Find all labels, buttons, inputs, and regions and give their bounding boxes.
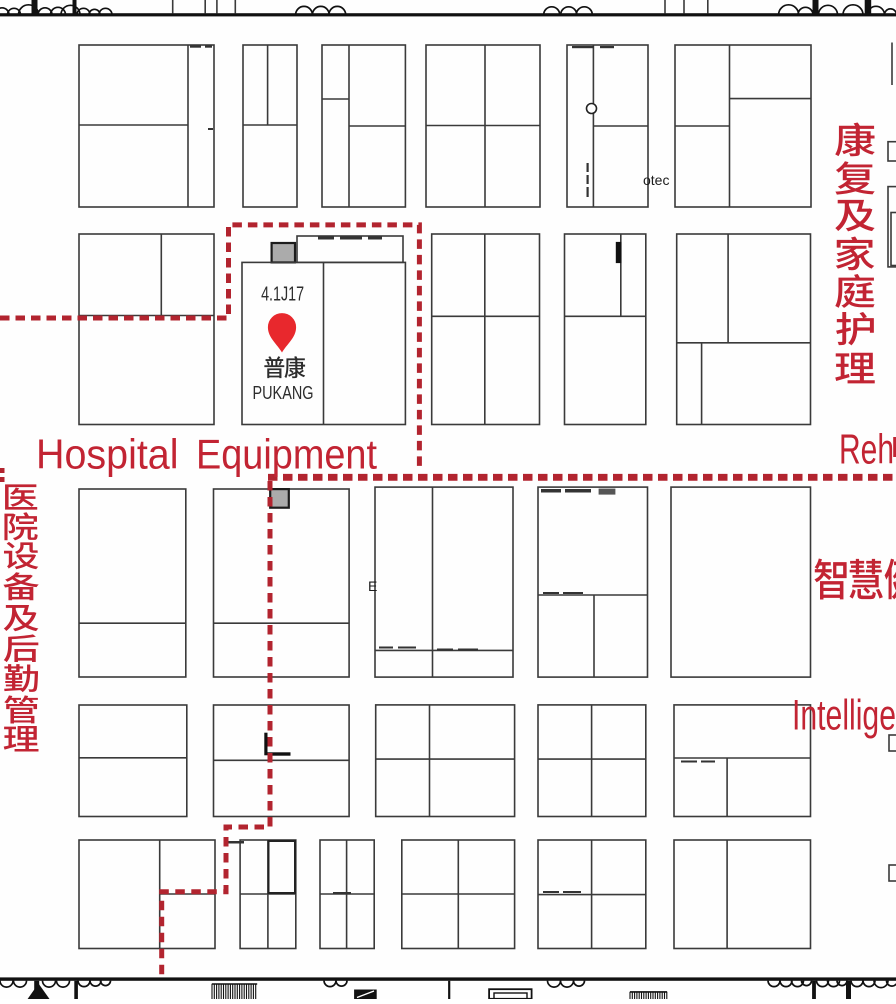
svg-text:PUKANG: PUKANG [253,382,314,403]
svg-text:otec: otec [643,172,669,188]
svg-text:Hospital: Hospital [36,431,179,478]
svg-text:Equipment: Equipment [196,431,377,478]
svg-text:Reh: Reh [839,426,894,473]
svg-text:4.1J17: 4.1J17 [261,284,304,306]
svg-text:E: E [368,578,377,594]
svg-text:Intellige: Intellige [792,692,896,740]
